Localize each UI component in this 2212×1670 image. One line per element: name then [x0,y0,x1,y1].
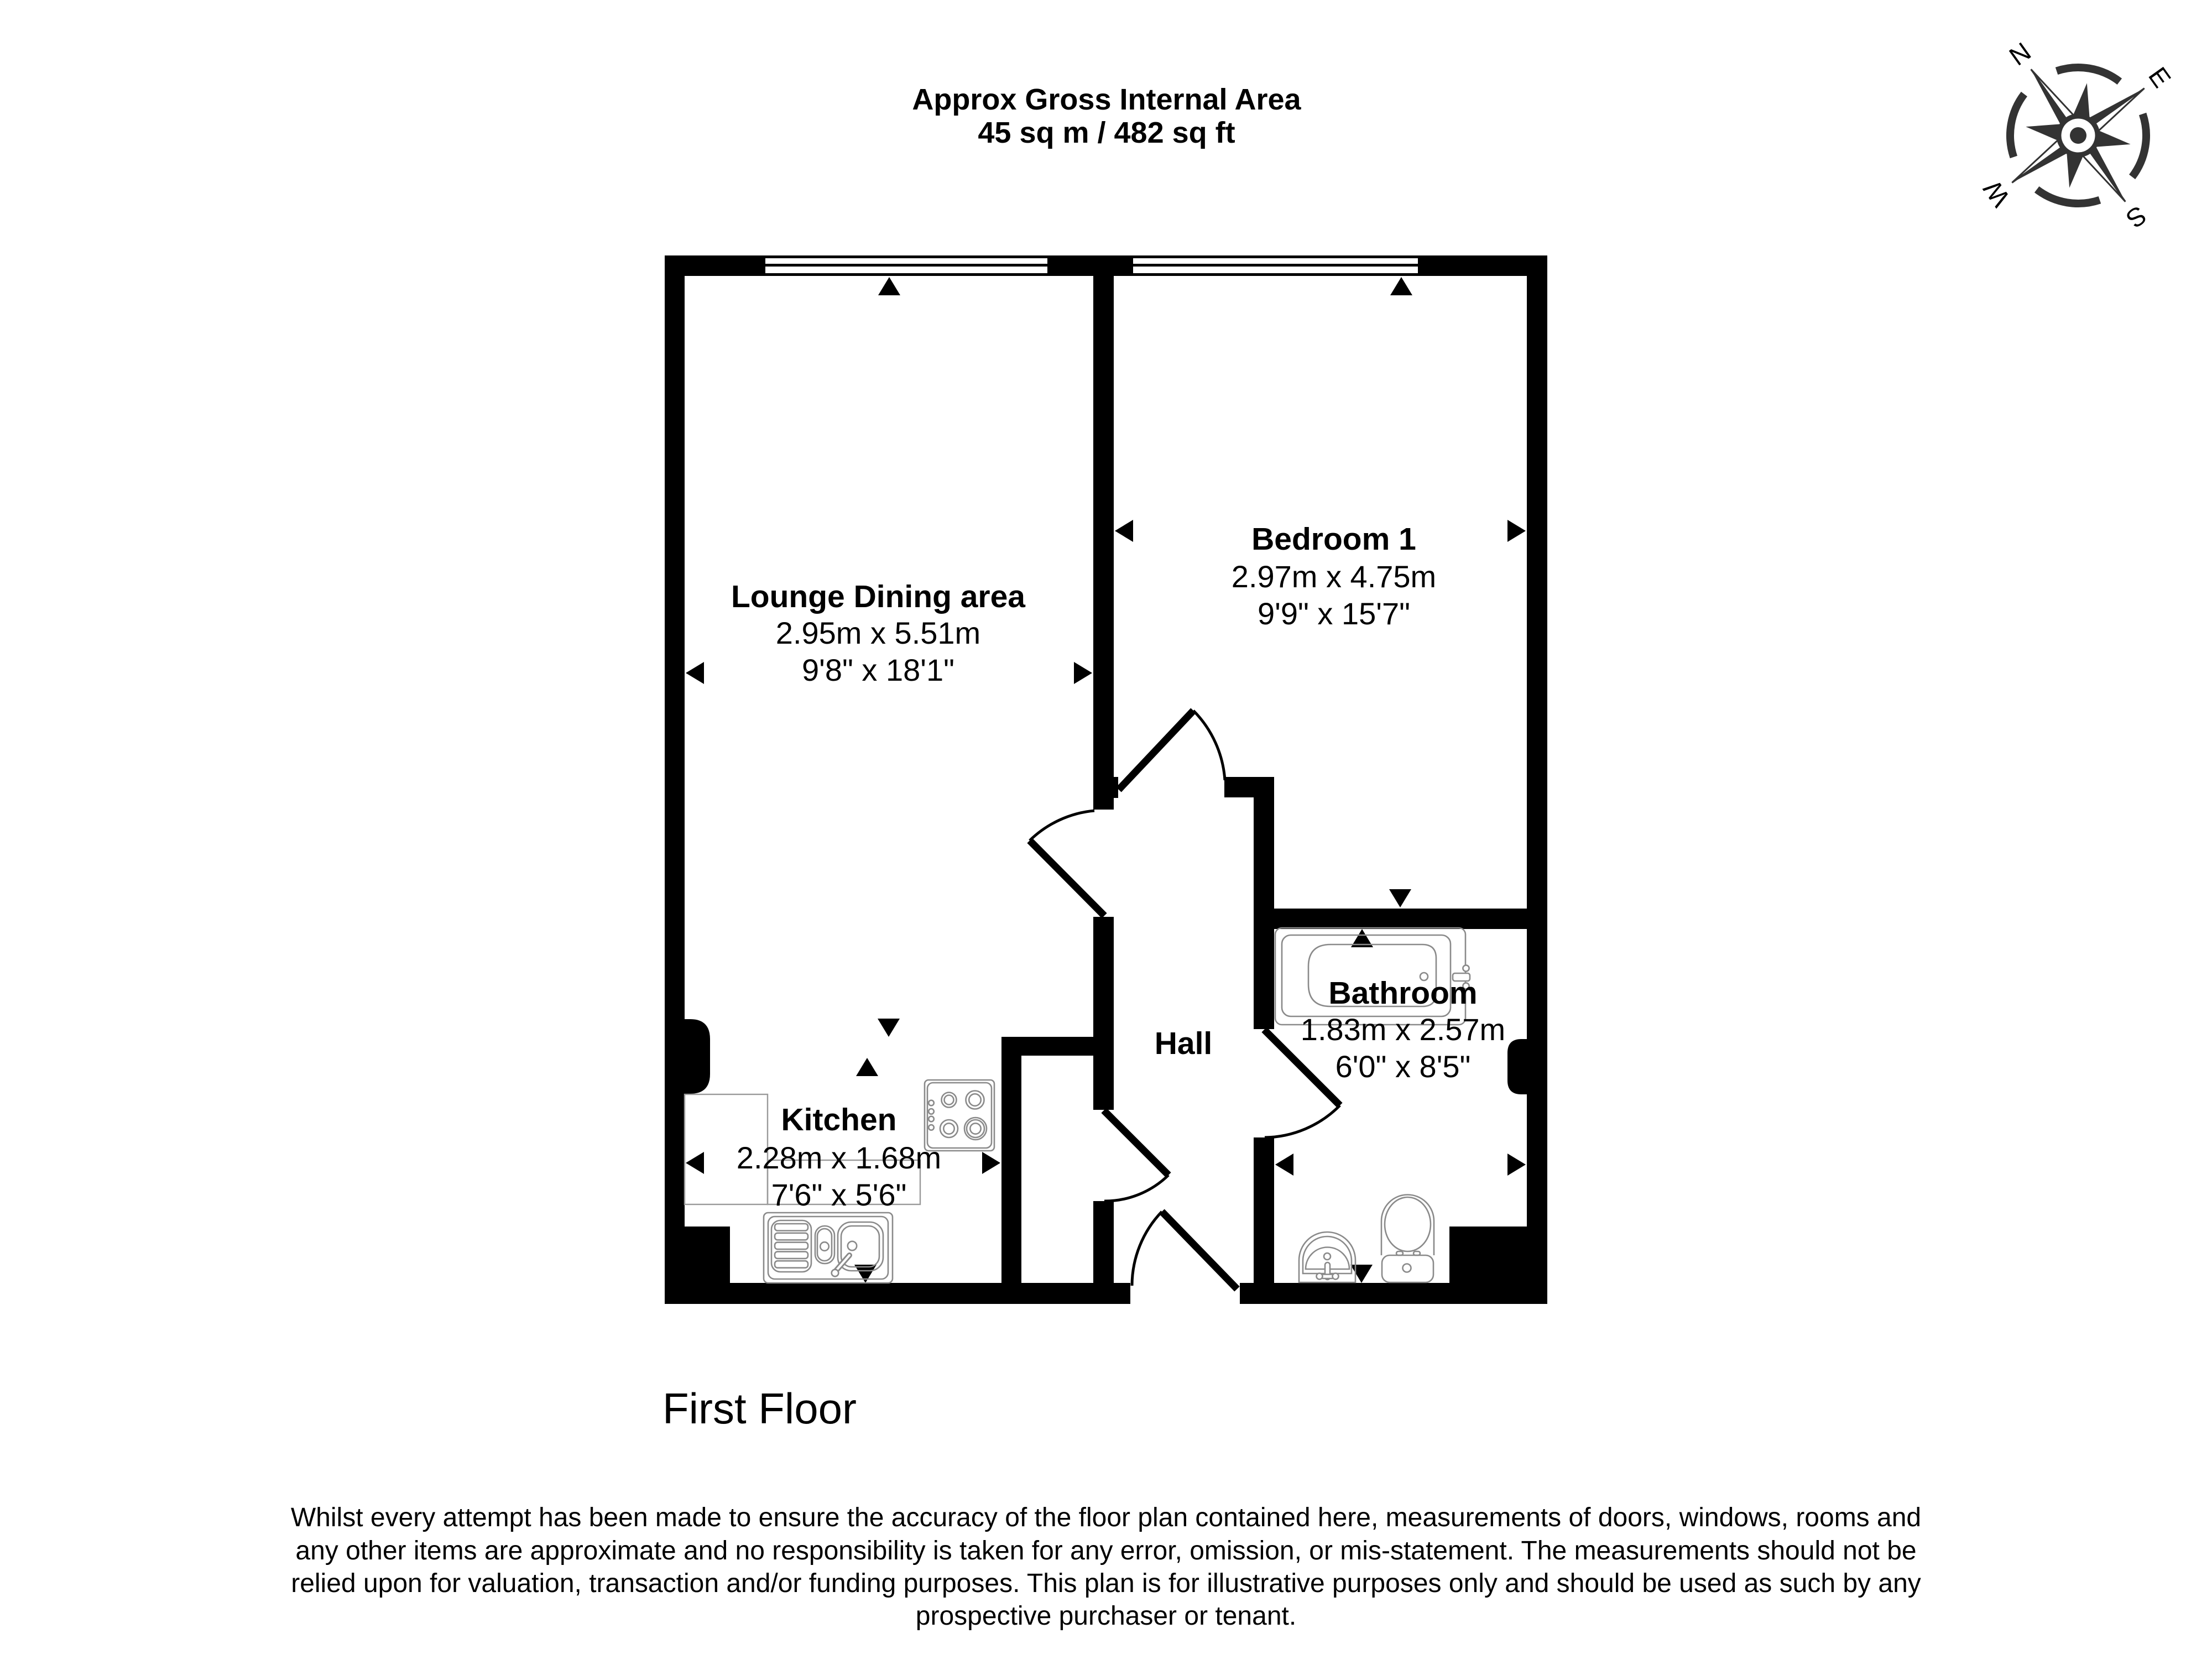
svg-text:7'6" x 5'6": 7'6" x 5'6" [771,1177,907,1212]
svg-text:Hall: Hall [1155,1026,1213,1061]
svg-text:1.83m x 2.57m: 1.83m x 2.57m [1301,1012,1505,1047]
svg-text:Approx Gross Internal Area: Approx Gross Internal Area [912,83,1301,116]
svg-text:9'8" x 18'1": 9'8" x 18'1" [802,653,954,687]
svg-text:6'0" x 8'5": 6'0" x 8'5" [1335,1049,1471,1084]
svg-text:2.97m x 4.75m: 2.97m x 4.75m [1232,559,1436,594]
svg-text:45 sq m / 482 sq ft: 45 sq m / 482 sq ft [978,116,1235,149]
svg-text:2.28m x 1.68m: 2.28m x 1.68m [737,1140,941,1175]
svg-text:any other items are approximat: any other items are approximate and no r… [295,1536,1916,1565]
svg-text:2.95m x 5.51m: 2.95m x 5.51m [776,615,980,650]
svg-text:relied upon for valuation, tra: relied upon for valuation, transaction a… [291,1569,1921,1598]
svg-text:Whilst every attempt has been: Whilst every attempt has been made to en… [291,1503,1921,1532]
svg-text:First Floor: First Floor [662,1384,857,1433]
svg-text:9'9" x 15'7": 9'9" x 15'7" [1258,596,1410,631]
svg-text:Bedroom 1: Bedroom 1 [1251,521,1416,557]
svg-text:prospective purchaser or tenan: prospective purchaser or tenant. [916,1601,1296,1631]
svg-text:Bathroom: Bathroom [1328,975,1477,1011]
svg-text:Lounge Dining area: Lounge Dining area [731,579,1026,614]
svg-text:Kitchen: Kitchen [781,1102,896,1137]
